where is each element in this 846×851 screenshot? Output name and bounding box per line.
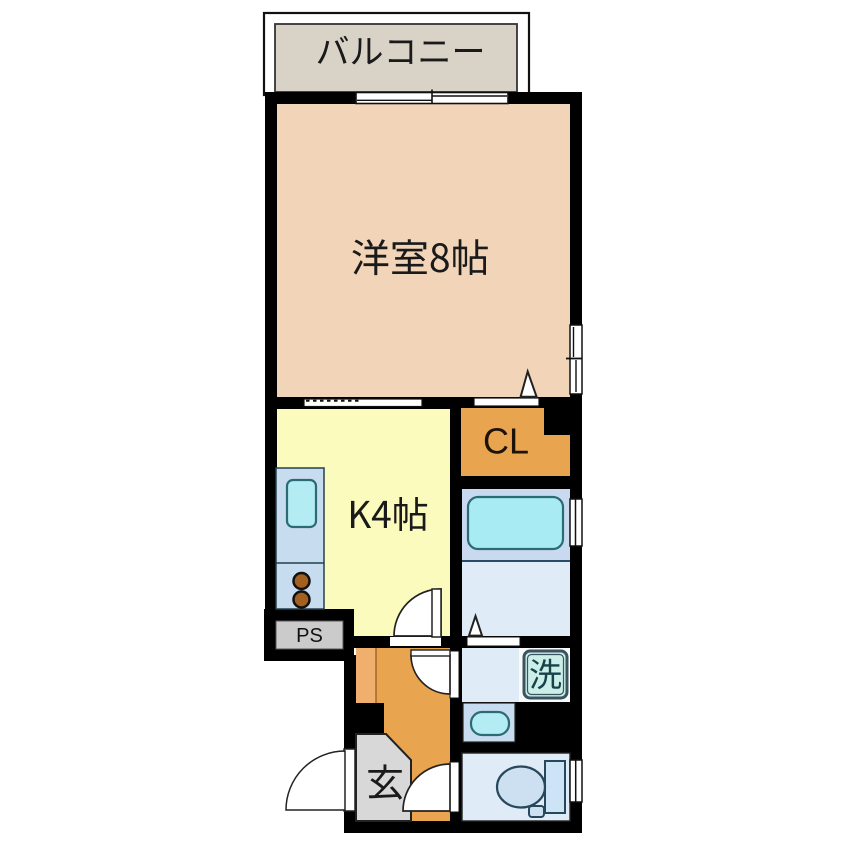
svg-text:PS: PS [296, 625, 323, 647]
svg-text:CL: CL [483, 420, 529, 461]
